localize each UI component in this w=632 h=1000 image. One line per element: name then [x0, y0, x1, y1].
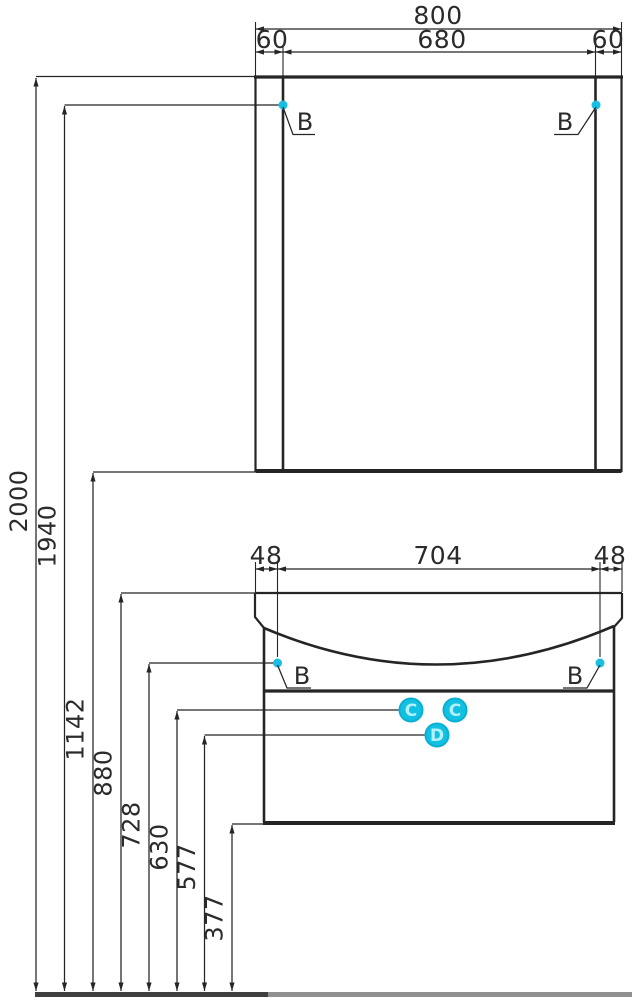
vanity-callout-b-right: B: [563, 659, 605, 691]
callout-badge-c2-label: C: [449, 701, 461, 721]
mounting-point-dot-icon: [592, 101, 601, 110]
vanity-unit: B B C C D: [255, 593, 622, 823]
mirror-cabinet: B B: [254, 77, 623, 471]
vanity-width-dimensions: 48 704 48: [250, 541, 627, 657]
callout-label-b: B: [557, 108, 573, 136]
height-label-728: 728: [118, 801, 146, 848]
callout-label-b: B: [567, 662, 583, 690]
dimension-label-48-left: 48: [250, 541, 283, 570]
floor-line: [35, 992, 632, 997]
callout-badge-c1-label: C: [405, 701, 417, 721]
mirror-frame: [256, 77, 622, 471]
dimension-label-60-left: 60: [256, 25, 289, 54]
height-label-377: 377: [201, 894, 229, 941]
vanity-callout-badges: C C D: [400, 699, 467, 747]
callout-label-b: B: [294, 662, 310, 690]
height-label-2000: 2000: [5, 469, 33, 532]
height-label-577: 577: [173, 843, 201, 890]
callout-label-b: B: [297, 108, 313, 136]
sink-left-profile: [255, 593, 264, 628]
floor-line-light-segment: [268, 992, 632, 997]
technical-drawing-canvas: 2000 1940 1142 880 728 630 577 377: [0, 0, 632, 1000]
height-label-1940: 1940: [34, 504, 62, 567]
bathroom-furniture-dimension-drawing: 2000 1940 1142 880 728 630 577 377: [0, 0, 632, 1000]
dimension-label-60-right: 60: [592, 25, 625, 54]
floor-line-dark-segment: [35, 992, 268, 997]
mirror-width-dimensions: 800 60 680 60: [256, 1, 625, 76]
sink-right-profile: [614, 593, 622, 627]
height-label-880: 880: [90, 749, 118, 796]
sink-basin-curve: [264, 626, 614, 665]
dimension-label-680: 680: [417, 25, 466, 54]
height-label-630: 630: [146, 823, 174, 870]
height-label-1142: 1142: [62, 697, 90, 760]
vanity-callout-b-left: B: [273, 659, 311, 691]
dimension-label-48-right: 48: [594, 541, 627, 570]
height-dimension-lines: 2000 1940 1142 880 728 630 577 377: [5, 77, 425, 992]
mirror-callout-b-right: B: [554, 101, 601, 137]
dimension-label-704: 704: [413, 541, 462, 570]
callout-badge-d-label: D: [430, 726, 444, 746]
